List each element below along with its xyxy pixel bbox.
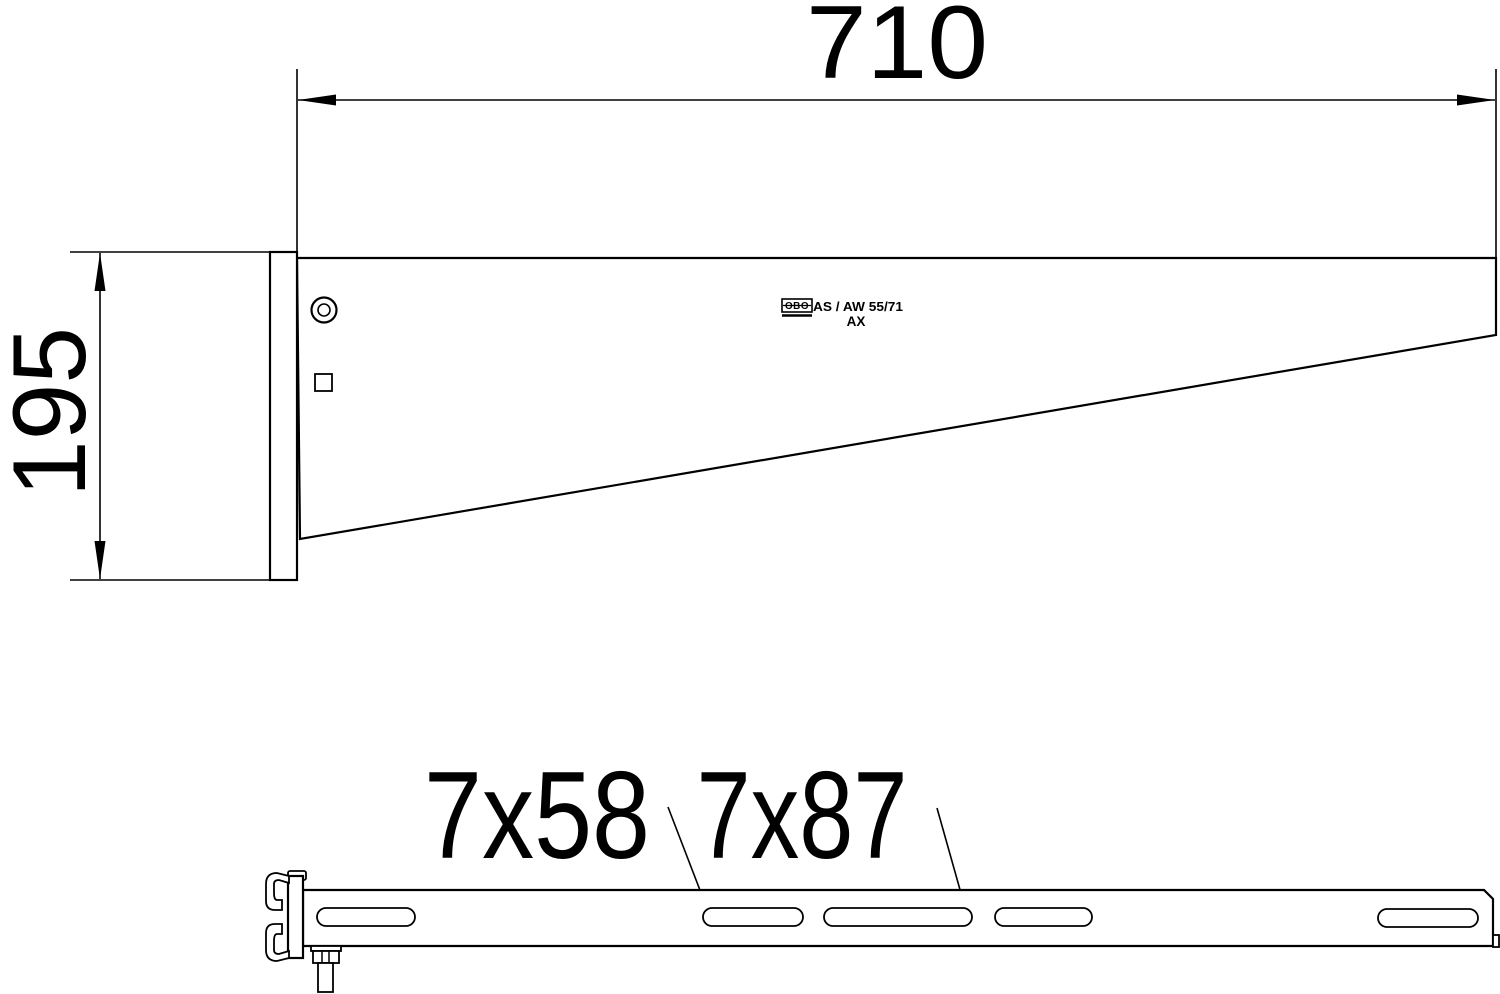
product-variant-label: AX xyxy=(847,314,866,329)
mounting-slot-2 xyxy=(703,908,803,926)
mounting-slot-3 xyxy=(824,908,972,926)
technical-drawing-page: 710 195 OBO AS / AW 55/71 AX 7x58 xyxy=(0,0,1500,994)
slot-pitch-label-87: 7x87 xyxy=(697,747,908,885)
height-dimension-arrow-top xyxy=(95,253,106,291)
hook-plate xyxy=(288,876,303,958)
bottom-view: 7x58 7x87 xyxy=(266,747,1499,992)
end-tab xyxy=(1493,935,1499,947)
side-view: 710 195 OBO AS / AW 55/71 AX xyxy=(0,0,1496,580)
c-hook-head xyxy=(266,871,306,961)
bolt-shaft xyxy=(318,963,333,992)
bolt-hex-head xyxy=(313,951,339,963)
product-type-label: AS / AW 55/71 xyxy=(813,299,903,314)
height-dimension-label: 195 xyxy=(0,327,108,497)
mounting-slot-1 xyxy=(317,908,415,926)
height-dimension-arrow-bottom xyxy=(95,541,106,579)
hook-bottom-curl xyxy=(266,924,289,961)
slot-pitch-label-58: 7x58 xyxy=(424,747,650,885)
hex-bolt xyxy=(311,946,341,992)
hook-top-curl xyxy=(266,873,289,910)
square-hole xyxy=(315,374,332,391)
mounting-slot-4 xyxy=(995,908,1092,926)
wall-mounting-plate xyxy=(270,252,297,580)
width-dimension-arrow-right xyxy=(1457,95,1495,106)
obo-logo-text: OBO xyxy=(785,301,809,312)
mounting-slot-5 xyxy=(1378,909,1478,927)
width-dimension-label: 710 xyxy=(806,0,988,101)
width-dimension-arrow-left xyxy=(298,95,336,106)
